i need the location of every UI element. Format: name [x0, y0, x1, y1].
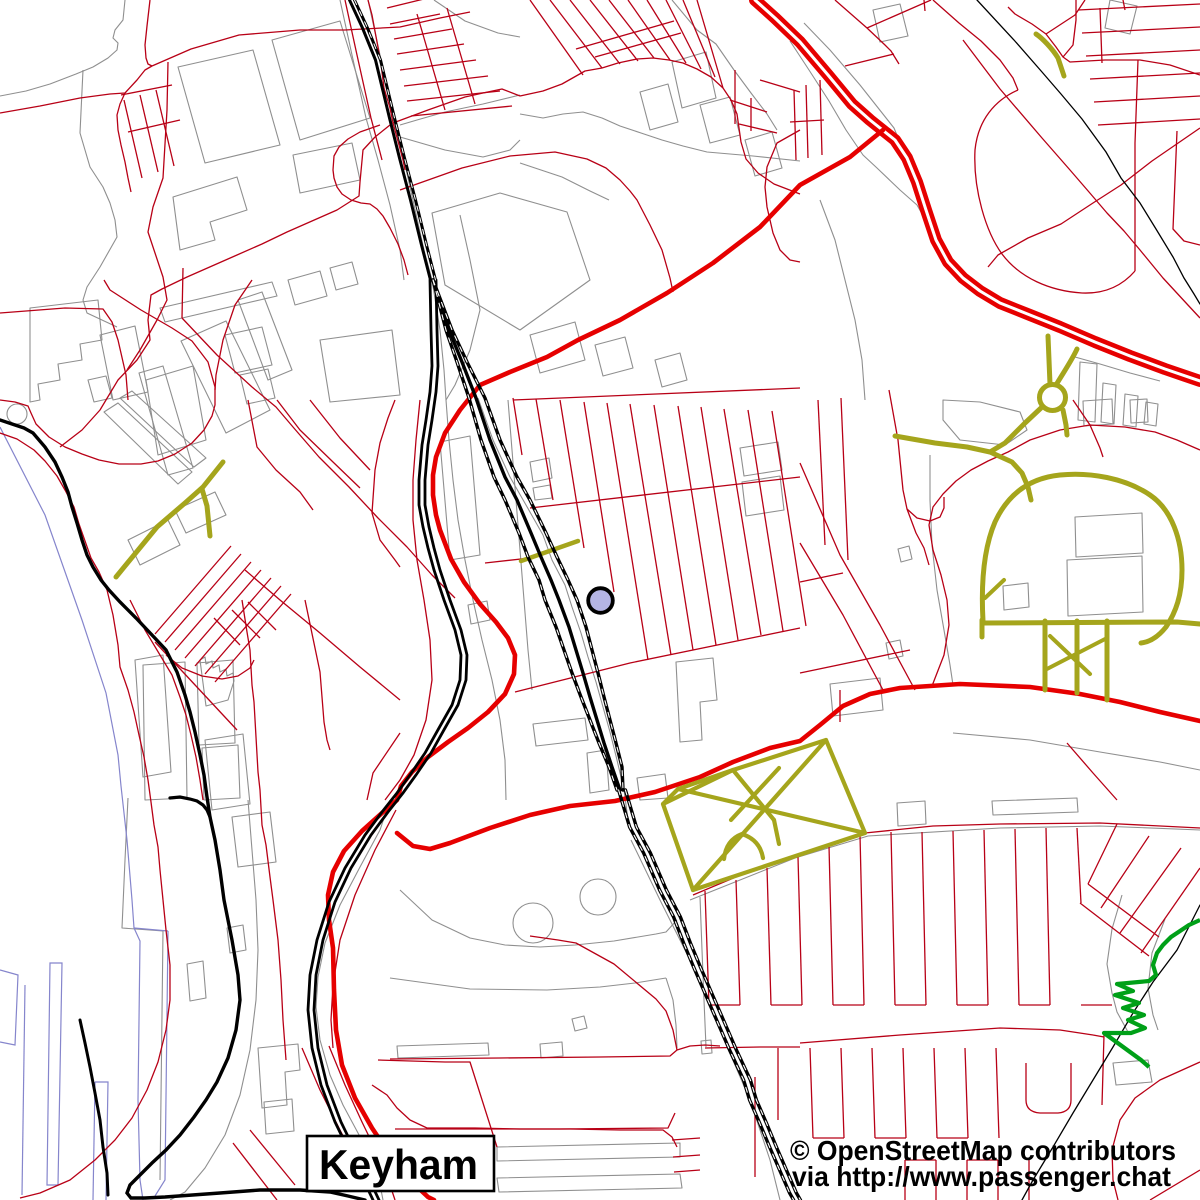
svg-text:via http://www.passenger.chat: via http://www.passenger.chat [792, 1161, 1171, 1192]
svg-text:Keyham: Keyham [319, 1141, 478, 1188]
